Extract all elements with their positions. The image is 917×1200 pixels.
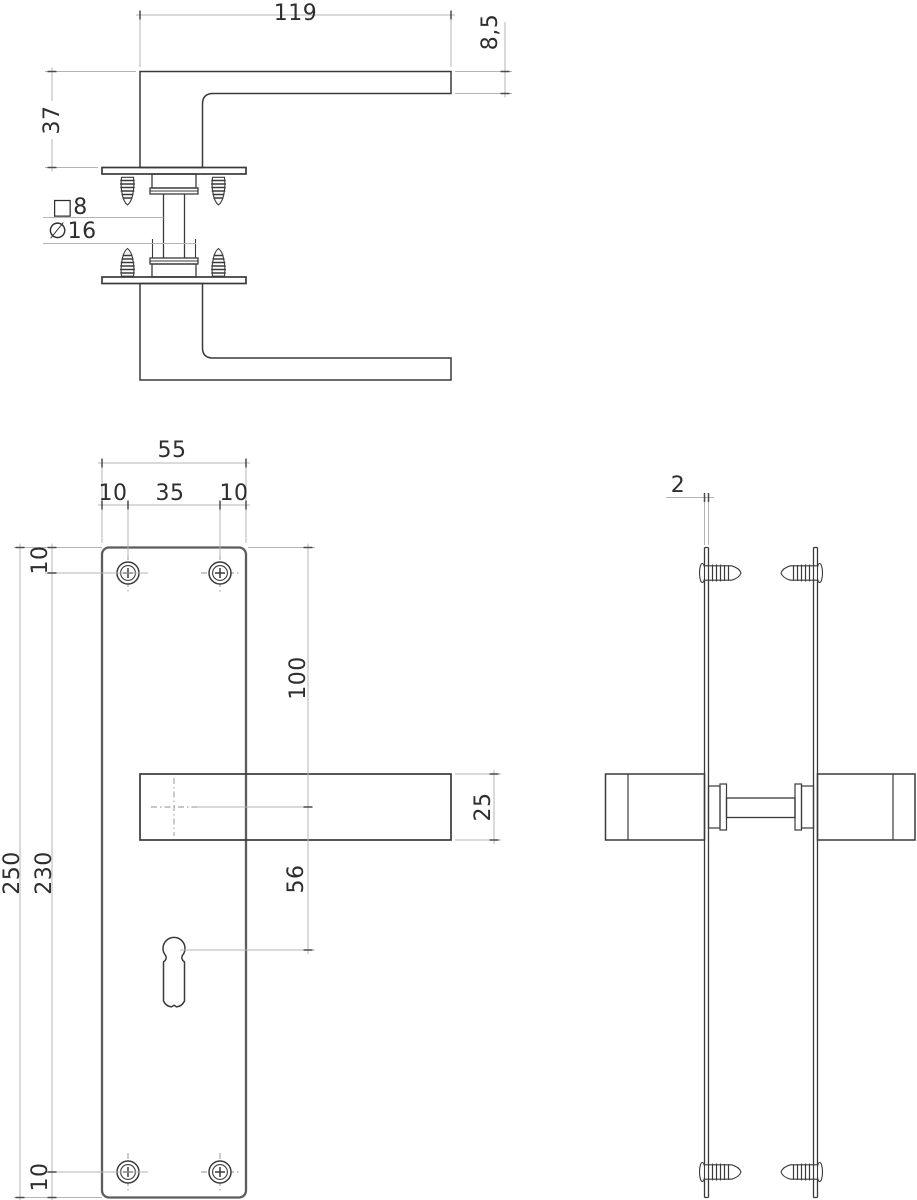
mount-screw — [211, 177, 226, 205]
dim-plate-width-label: 55 — [158, 438, 187, 463]
dim-bottom-screw-offset-label: 10 — [28, 1163, 53, 1192]
keyhole — [163, 937, 185, 1007]
edge-screw — [700, 564, 742, 583]
dim-handle-height-label: 37 — [40, 106, 65, 135]
dim-grip-width: 25 — [455, 770, 501, 844]
right-washer-edge — [795, 784, 802, 830]
upper-rose-plate — [102, 168, 246, 175]
spindle-square-edges — [164, 194, 185, 258]
dim-screw-distance-label: 230 — [32, 851, 57, 895]
dim-handle-length: 119 — [136, 1, 455, 67]
right-plate-edge — [814, 548, 818, 1198]
dim-plate-height-label: 250 — [0, 851, 25, 895]
lower-rose-plate — [102, 277, 246, 284]
plate-screw — [201, 1153, 239, 1191]
label-spindle-square: □8 — [43, 195, 164, 220]
edge-screw — [781, 564, 823, 583]
left-plate-edge — [705, 548, 709, 1198]
upper-lever-outline — [140, 72, 451, 168]
technical-drawing: 119 8,5 37 □8 ∅16 55 10 — [0, 0, 917, 1200]
neck-cylinder-edges — [153, 239, 196, 258]
dim-left-column: 10 250 230 10 — [0, 544, 315, 1200]
lower-collar — [152, 264, 196, 277]
right-collar-edge — [802, 786, 814, 828]
left-washer-edge — [720, 784, 727, 830]
neck-diameter-label: ∅16 — [48, 219, 97, 244]
extension-lines — [666, 494, 714, 545]
edge-screw — [700, 1163, 742, 1182]
left-grip-edge — [606, 774, 705, 840]
edge-screw — [781, 1163, 823, 1182]
handle-side-view — [102, 72, 451, 381]
mount-screw — [120, 249, 135, 277]
dim-plate-thickness: 2 — [666, 473, 714, 545]
dim-handle-center-label: 100 — [286, 656, 311, 700]
backplate-front-view — [102, 548, 451, 1198]
right-grip-edge — [818, 774, 916, 840]
spindle-square-label: □8 — [52, 195, 88, 220]
dim-handle-center: 100 56 — [180, 544, 315, 955]
mount-screw — [211, 249, 226, 277]
spindle-edge — [727, 798, 796, 818]
dim-plate-thickness-label: 2 — [671, 473, 686, 498]
dim-screw-left-offset-label: 10 — [99, 481, 128, 506]
dim-handle-length-label: 119 — [274, 1, 318, 26]
dim-handle-height: 37 — [40, 68, 136, 172]
dim-screw-right-offset-label: 10 — [220, 481, 249, 506]
left-collar-edge — [709, 786, 721, 828]
spindle-centerline-cross — [151, 778, 197, 836]
lower-lever-outline — [140, 284, 451, 381]
backplate-outline — [102, 548, 246, 1198]
extension-lines — [14, 544, 315, 1200]
drawing-page: 119 8,5 37 □8 ∅16 55 10 — [0, 0, 917, 1200]
dim-grip-thickness: 8,5 — [455, 14, 512, 98]
plate-screw — [201, 554, 239, 592]
dim-grip-thickness-label: 8,5 — [478, 14, 503, 51]
dim-grip-width-label: 25 — [471, 793, 496, 822]
label-neck-diameter: ∅16 — [43, 219, 196, 244]
dim-keyhole-offset-label: 56 — [284, 865, 309, 894]
dim-screw-spacing-label: 35 — [156, 481, 185, 506]
backplate-edge-view — [606, 548, 916, 1198]
dim-screw-positions: 10 35 10 — [98, 481, 250, 556]
mount-screw — [120, 177, 135, 205]
dim-top-screw-offset-label: 10 — [28, 546, 53, 575]
upper-collar — [152, 174, 196, 188]
